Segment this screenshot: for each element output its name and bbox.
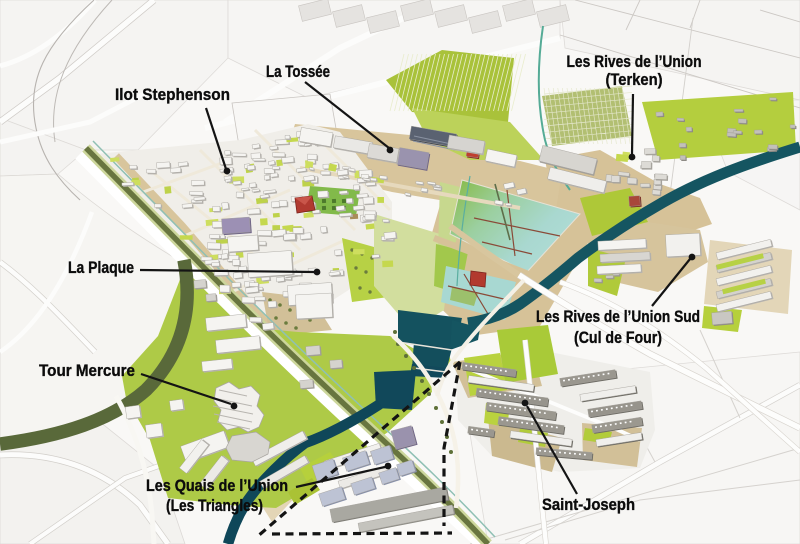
svg-text:Saint-Joseph: Saint-Joseph [542, 496, 635, 514]
svg-text:La Tossée: La Tossée [266, 63, 330, 81]
svg-text:(Terken): (Terken) [606, 71, 663, 89]
svg-text:Les Rives de l’Union Sud: Les Rives de l’Union Sud [536, 308, 700, 326]
svg-text:Les Quais de l’Union: Les Quais de l’Union [146, 477, 288, 495]
svg-text:Ilot Stephenson: Ilot Stephenson [115, 86, 230, 104]
svg-text:(Les Triangles): (Les Triangles) [166, 497, 263, 515]
svg-text:Les Rives de l’Union: Les Rives de l’Union [567, 53, 702, 71]
svg-text:La Plaque: La Plaque [68, 259, 134, 277]
svg-text:Tour Mercure: Tour Mercure [39, 362, 135, 380]
svg-text:(Cul de Four): (Cul de Four) [574, 329, 662, 347]
